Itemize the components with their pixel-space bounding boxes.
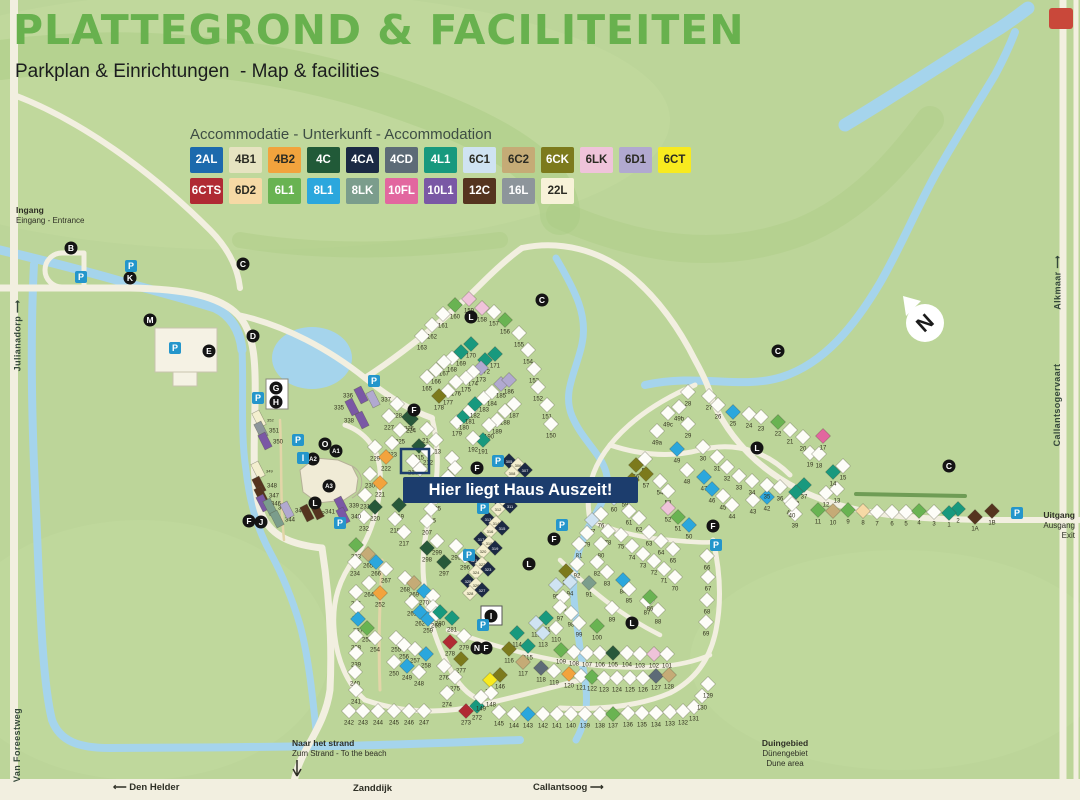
legend-swatch-6LK: 6LK: [580, 147, 613, 173]
svg-text:92: 92: [574, 574, 581, 580]
svg-text:117: 117: [518, 672, 528, 678]
facility-badge-F: F: [480, 642, 493, 655]
svg-text:245: 245: [389, 721, 400, 727]
svg-text:138: 138: [595, 724, 606, 730]
svg-text:P: P: [255, 393, 261, 403]
den-helder-label: ⟵ Den Helder: [113, 782, 179, 793]
svg-text:23: 23: [758, 427, 765, 433]
svg-text:166: 166: [431, 380, 442, 386]
plot-207: 207: [420, 514, 435, 537]
svg-text:142: 142: [538, 724, 549, 730]
facility-badge-F: F: [548, 533, 561, 546]
svg-text:133: 133: [665, 722, 676, 728]
svg-text:106: 106: [595, 663, 606, 669]
svg-text:F: F: [710, 521, 715, 531]
legend-swatch-6L1: 6L1: [268, 178, 301, 204]
plot-70: 70: [668, 570, 683, 593]
svg-text:34: 34: [749, 491, 756, 497]
svg-text:158: 158: [477, 318, 488, 324]
svg-text:69: 69: [703, 632, 710, 638]
legend-swatch-8LK: 8LK: [346, 178, 379, 204]
svg-text:248: 248: [414, 682, 425, 688]
svg-text:18: 18: [816, 464, 823, 470]
legend-swatch-6D1: 6D1: [619, 147, 652, 173]
svg-text:298: 298: [422, 558, 433, 564]
svg-text:P: P: [337, 518, 343, 528]
svg-text:85: 85: [626, 599, 633, 605]
svg-text:A1: A1: [332, 449, 340, 455]
beach-label-nl: Naar het strand: [292, 738, 354, 748]
svg-text:143: 143: [523, 724, 534, 730]
page-subtitle: Parkplan & Einrichtungen - Map & facilit…: [15, 61, 379, 83]
svg-text:100: 100: [592, 636, 603, 642]
svg-text:12: 12: [823, 503, 830, 509]
svg-text:68: 68: [704, 610, 711, 616]
parking-icon: P: [169, 342, 181, 354]
svg-text:280: 280: [435, 622, 446, 628]
svg-text:P: P: [172, 343, 178, 353]
svg-text:25: 25: [730, 422, 737, 428]
svg-text:5: 5: [904, 522, 908, 528]
svg-text:184: 184: [487, 402, 498, 408]
svg-text:F: F: [411, 405, 416, 415]
svg-text:220: 220: [370, 517, 381, 523]
plot-34: 34: [745, 474, 760, 497]
plot-137: 137: [606, 707, 621, 730]
svg-text:109: 109: [556, 660, 567, 666]
svg-text:146: 146: [495, 685, 506, 691]
svg-text:350: 350: [273, 440, 284, 446]
svg-text:P: P: [480, 620, 486, 630]
plot-124: 124: [610, 671, 625, 694]
plot-48: 48: [680, 463, 695, 486]
svg-text:320: 320: [480, 549, 487, 554]
facility-badge-B: B: [65, 242, 78, 255]
legend-swatch-8L1: 8L1: [307, 178, 340, 204]
location-callout: Hier liegt Haus Auszeit!: [403, 477, 638, 503]
svg-text:19: 19: [807, 463, 814, 469]
plot-133: 133: [663, 705, 678, 728]
legend-swatch-16L: 16L: [502, 178, 535, 204]
plot-46: 46: [705, 482, 720, 505]
svg-text:187: 187: [509, 414, 520, 420]
plot-127: 127: [649, 669, 664, 692]
svg-text:103: 103: [635, 664, 646, 670]
svg-text:67: 67: [705, 587, 712, 593]
plot-135: 135: [635, 706, 650, 729]
svg-text:161: 161: [438, 324, 449, 330]
svg-text:175: 175: [461, 388, 472, 394]
svg-text:64: 64: [658, 551, 665, 557]
parking-icon: P: [492, 455, 504, 467]
svg-text:50: 50: [686, 535, 693, 541]
svg-text:250: 250: [389, 672, 400, 678]
svg-text:144: 144: [509, 724, 520, 730]
parking-icon: P: [463, 549, 475, 561]
svg-text:315: 315: [499, 526, 506, 531]
svg-text:149: 149: [476, 707, 487, 713]
svg-text:10: 10: [830, 521, 837, 527]
svg-text:132: 132: [678, 721, 689, 727]
svg-text:P: P: [480, 503, 486, 513]
svg-text:339: 339: [349, 504, 360, 510]
svg-text:43: 43: [750, 510, 757, 516]
svg-text:42: 42: [764, 507, 771, 513]
legend-swatch-6C1: 6C1: [463, 147, 496, 173]
svg-text:32: 32: [724, 477, 731, 483]
plot-144: 144: [507, 707, 522, 730]
svg-text:278: 278: [445, 652, 456, 658]
svg-text:74: 74: [629, 556, 636, 562]
svg-text:252: 252: [375, 603, 386, 609]
svg-text:F: F: [474, 463, 479, 473]
svg-text:145: 145: [494, 722, 505, 728]
plot-72: 72: [647, 554, 662, 577]
parking-icon: P: [477, 502, 489, 514]
svg-text:180: 180: [459, 426, 470, 432]
svg-text:121: 121: [576, 686, 587, 692]
dune-label-nl: Duingebied: [762, 738, 808, 748]
svg-text:131: 131: [689, 717, 700, 723]
svg-text:B: B: [68, 243, 74, 253]
svg-text:129: 129: [703, 694, 714, 700]
svg-text:181: 181: [465, 420, 476, 426]
svg-text:97: 97: [557, 617, 564, 623]
entrance-label: Ingang Eingang - Entrance: [16, 205, 85, 226]
facility-badge-D: D: [247, 330, 260, 343]
svg-text:160: 160: [450, 315, 461, 321]
facility-badge-A3: A3: [323, 480, 336, 493]
svg-text:E: E: [206, 346, 212, 356]
svg-text:1B: 1B: [988, 521, 995, 527]
svg-text:191: 191: [478, 450, 489, 456]
svg-text:324: 324: [473, 570, 480, 575]
plot-71: 71: [657, 562, 672, 585]
svg-text:P: P: [713, 540, 719, 550]
svg-text:341: 341: [325, 510, 336, 516]
svg-text:182: 182: [470, 414, 481, 420]
svg-text:266: 266: [371, 572, 382, 578]
svg-text:279: 279: [459, 646, 470, 652]
svg-text:150: 150: [546, 434, 557, 440]
facility-badge-C: C: [772, 345, 785, 358]
plot-134: 134: [649, 706, 664, 729]
legend-swatch-4CD: 4CD: [385, 147, 418, 173]
svg-text:61: 61: [626, 521, 633, 527]
svg-text:296: 296: [460, 566, 471, 572]
svg-text:63: 63: [646, 542, 653, 548]
svg-text:156: 156: [500, 330, 511, 336]
park-map: 1601591581571561611621631551541531521511…: [0, 0, 1080, 800]
svg-text:49c: 49c: [663, 423, 673, 429]
svg-text:120: 120: [564, 684, 575, 690]
svg-text:49a: 49a: [652, 441, 663, 447]
facility-badge-J: J: [255, 516, 268, 529]
plot-247: 247: [417, 704, 432, 727]
svg-text:6: 6: [890, 522, 894, 528]
svg-text:P: P: [78, 272, 84, 282]
svg-text:316: 316: [487, 529, 494, 534]
facility-badge-G: G: [270, 382, 283, 395]
svg-text:254: 254: [370, 648, 381, 654]
svg-text:148: 148: [486, 703, 497, 709]
facility-badge-H: H: [270, 396, 283, 409]
svg-text:113: 113: [538, 643, 548, 649]
svg-text:123: 123: [599, 688, 610, 694]
plot-33: 33: [732, 469, 747, 492]
dune-label-en: Dune area: [766, 759, 803, 768]
legend-swatch-4C: 4C: [307, 147, 340, 173]
legend: Accommodatie - Unterkunft - Accommodatio…: [190, 126, 691, 209]
svg-text:140: 140: [566, 724, 577, 730]
plot-335: 335: [334, 398, 359, 416]
facility-badge-L: L: [626, 617, 639, 630]
entrance-label-nl: Ingang: [16, 205, 44, 215]
plot-42: 42: [760, 490, 775, 513]
parking-icon: P: [292, 434, 304, 446]
svg-text:340: 340: [351, 515, 362, 521]
facility-badge-A1: A1: [330, 445, 343, 458]
facility-badge-F: F: [471, 462, 484, 475]
svg-text:186: 186: [504, 390, 515, 396]
svg-text:323: 323: [485, 567, 492, 572]
svg-text:165: 165: [422, 387, 433, 393]
svg-text:336: 336: [343, 394, 354, 400]
svg-text:28: 28: [685, 402, 692, 408]
svg-text:105: 105: [608, 663, 619, 669]
plot-170: 170: [464, 337, 479, 360]
facility-badge-O: O: [319, 438, 332, 451]
svg-text:178: 178: [434, 406, 445, 412]
plot-44: 44: [725, 498, 740, 521]
svg-text:101: 101: [662, 664, 673, 670]
svg-text:267: 267: [381, 579, 392, 585]
legend-row-2: 6CTS6D26L18L18LK10FL10L112C16L22L: [190, 178, 691, 204]
svg-text:171: 171: [490, 364, 501, 370]
facility-badge-C: C: [536, 294, 549, 307]
svg-text:335: 335: [334, 406, 345, 412]
plot-156: 156: [498, 313, 513, 336]
svg-text:348: 348: [267, 484, 278, 490]
facility-badge-K: K: [124, 272, 137, 285]
svg-text:136: 136: [623, 723, 634, 729]
plot-278: 278: [443, 635, 458, 658]
svg-text:241: 241: [351, 700, 362, 706]
svg-text:F: F: [246, 516, 251, 526]
svg-text:46: 46: [709, 499, 716, 505]
svg-text:48: 48: [684, 480, 691, 486]
svg-text:169: 169: [456, 362, 467, 368]
svg-text:7: 7: [875, 522, 879, 528]
svg-text:24: 24: [746, 424, 753, 430]
parking-icon: P: [710, 539, 722, 551]
svg-text:J: J: [259, 517, 264, 527]
svg-text:22: 22: [775, 432, 782, 438]
svg-text:157: 157: [489, 322, 500, 328]
svg-text:311: 311: [507, 504, 514, 509]
facility-badge-E: E: [203, 345, 216, 358]
svg-text:L: L: [526, 559, 531, 569]
svg-text:104: 104: [622, 663, 633, 669]
facility-badge-C: C: [237, 258, 250, 271]
svg-text:297: 297: [439, 572, 450, 578]
plot-74: 74: [625, 539, 640, 562]
plot-252: 252: [373, 586, 388, 609]
exit-label-en: Exit: [1062, 531, 1075, 540]
svg-text:152: 152: [533, 397, 544, 403]
beach-label: Naar het strand Zum Strand - To the beac…: [292, 738, 387, 759]
svg-text:86: 86: [647, 607, 654, 613]
zanddijk-label: Zanddijk: [353, 783, 392, 794]
facility-badge-F: F: [408, 404, 421, 417]
svg-text:89: 89: [609, 618, 616, 624]
svg-text:312: 312: [495, 507, 502, 512]
alkmaar-label: Alkmaar ⟶: [1053, 223, 1064, 343]
svg-text:33: 33: [736, 486, 743, 492]
facility-badge-L: L: [751, 442, 764, 455]
legend-swatch-4B2: 4B2: [268, 147, 301, 173]
plot-51: 51: [671, 510, 686, 533]
svg-text:83: 83: [604, 582, 611, 588]
svg-text:15: 15: [840, 476, 847, 482]
beach-label-sub: Zum Strand - To the beach: [292, 749, 387, 758]
compass-icon: N: [903, 296, 944, 342]
svg-text:126: 126: [638, 688, 649, 694]
exit-label-de: Ausgang: [1043, 521, 1075, 530]
svg-text:52: 52: [665, 518, 672, 524]
svg-text:99: 99: [576, 633, 583, 639]
plot-73: 73: [636, 547, 651, 570]
svg-text:274: 274: [442, 703, 453, 709]
svg-text:308: 308: [509, 471, 516, 476]
plot-1B: 1B: [985, 504, 1000, 527]
parking-icon: P: [334, 517, 346, 529]
svg-text:P: P: [295, 435, 301, 445]
svg-text:H: H: [273, 397, 279, 407]
svg-text:30: 30: [700, 457, 707, 463]
parking-icon: P: [368, 375, 380, 387]
svg-text:222: 222: [381, 467, 392, 473]
svg-text:70: 70: [672, 587, 679, 593]
legend-swatch-10FL: 10FL: [385, 178, 418, 204]
plot-120: 120: [562, 667, 577, 690]
svg-text:G: G: [273, 383, 280, 393]
plot-104: 104: [620, 646, 635, 669]
svg-text:217: 217: [399, 542, 410, 548]
svg-text:307: 307: [522, 468, 529, 473]
callantsoog-label: Callantsoog ⟶: [533, 782, 604, 793]
svg-text:207: 207: [422, 531, 433, 537]
svg-text:110: 110: [551, 638, 561, 644]
svg-text:39: 39: [792, 524, 799, 530]
svg-text:C: C: [539, 295, 545, 305]
plot-136: 136: [621, 706, 636, 729]
svg-text:P: P: [466, 550, 472, 560]
svg-text:P: P: [371, 376, 377, 386]
svg-text:125: 125: [625, 688, 636, 694]
svg-text:337: 337: [381, 398, 392, 404]
svg-text:128: 128: [664, 685, 675, 691]
plot-100: 100: [590, 619, 605, 642]
svg-text:327: 327: [479, 588, 486, 593]
dune-area-label: Duingebied Dünengebiet Dune area: [745, 738, 825, 769]
plot-281: 281: [445, 611, 460, 634]
svg-text:88: 88: [655, 620, 662, 626]
svg-text:35: 35: [764, 495, 771, 501]
svg-text:119: 119: [549, 681, 559, 687]
svg-text:137: 137: [608, 724, 619, 730]
svg-text:L: L: [629, 618, 634, 628]
legend-swatch-6C2: 6C2: [502, 147, 535, 173]
facility-badge-C: C: [943, 460, 956, 473]
svg-text:49: 49: [674, 459, 681, 465]
svg-text:D: D: [250, 331, 256, 341]
legend-swatch-6CK: 6CK: [541, 147, 574, 173]
svg-text:91: 91: [586, 593, 593, 599]
svg-text:107: 107: [582, 663, 593, 669]
svg-text:P: P: [1014, 508, 1020, 518]
svg-text:73: 73: [640, 564, 647, 570]
plot-118: 118: [534, 661, 549, 684]
plot-110: 110: [549, 621, 564, 644]
svg-text:P: P: [128, 261, 134, 271]
plot-91: 91: [582, 576, 597, 599]
svg-text:29: 29: [685, 434, 692, 440]
svg-text:347: 347: [269, 494, 280, 500]
svg-text:249: 249: [402, 676, 413, 682]
svg-text:242: 242: [344, 721, 355, 727]
svg-text:118: 118: [536, 678, 546, 684]
legend-swatch-2AL: 2AL: [190, 147, 223, 173]
svg-text:243: 243: [358, 721, 369, 727]
plot-143: 143: [521, 707, 536, 730]
plot-83: 83: [600, 565, 615, 588]
parking-icon: P: [252, 392, 264, 404]
svg-text:9: 9: [846, 520, 850, 526]
dune-label-de: Dünengebiet: [762, 749, 807, 758]
plot-67: 67: [701, 570, 716, 593]
corner-marker: [1049, 8, 1073, 29]
entrance-label-sub: Eingang - Entrance: [16, 216, 85, 225]
legend-swatch-6CT: 6CT: [658, 147, 691, 173]
exit-label-nl: Uitgang: [1043, 510, 1075, 520]
svg-text:1A: 1A: [971, 527, 978, 533]
plot-155: 155: [512, 326, 527, 349]
svg-text:C: C: [946, 461, 952, 471]
svg-text:351: 351: [269, 429, 280, 435]
plot-128: 128: [662, 668, 677, 691]
plot-22: 22: [771, 415, 786, 438]
plot-126: 126: [636, 671, 651, 694]
svg-text:75: 75: [618, 545, 625, 551]
svg-text:K: K: [127, 273, 134, 283]
svg-text:116: 116: [504, 659, 514, 665]
svg-text:177: 177: [443, 401, 454, 407]
svg-text:139: 139: [580, 724, 591, 730]
svg-text:1: 1: [947, 523, 951, 529]
svg-text:36: 36: [777, 497, 784, 503]
svg-text:65: 65: [670, 559, 677, 565]
svg-text:135: 135: [637, 723, 648, 729]
exit-label: Uitgang Ausgang Exit: [1030, 510, 1075, 541]
svg-text:134: 134: [651, 723, 662, 729]
legend-row-1: 2AL4B14B24C4CA4CD4L16C16C26CK6LK6D16CT: [190, 147, 691, 173]
plot-142: 142: [536, 707, 551, 730]
svg-text:170: 170: [466, 354, 477, 360]
svg-text:17: 17: [820, 446, 827, 452]
svg-text:247: 247: [419, 721, 430, 727]
svg-text:P: P: [559, 520, 565, 530]
